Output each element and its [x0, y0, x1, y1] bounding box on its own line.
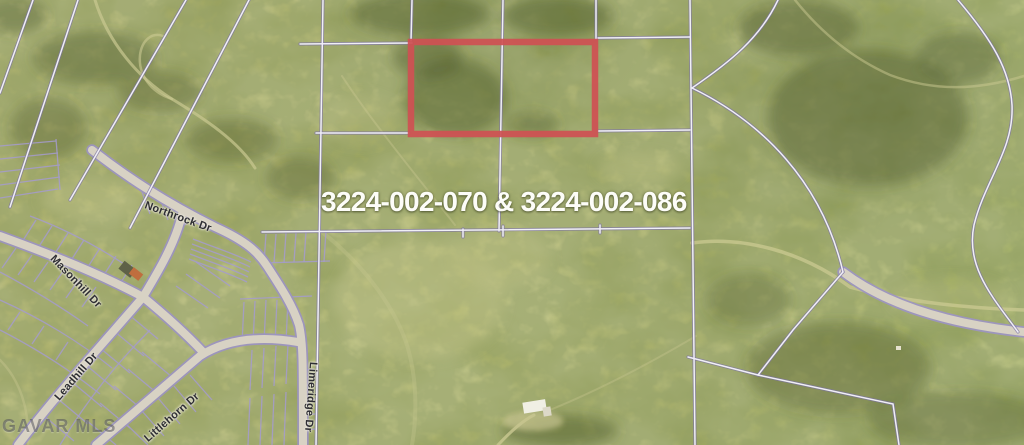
aerial-parcel-map: 3224-002-070 & 3224-002-086 Northrock Dr…: [0, 0, 1024, 445]
white-building-wing: [542, 406, 551, 416]
small-structure: [896, 346, 901, 350]
parcel-id-label: 3224-002-070 & 3224-002-086: [321, 186, 687, 218]
mls-watermark: GAVAR MLS: [2, 416, 116, 437]
map-graphics: [0, 0, 1024, 445]
